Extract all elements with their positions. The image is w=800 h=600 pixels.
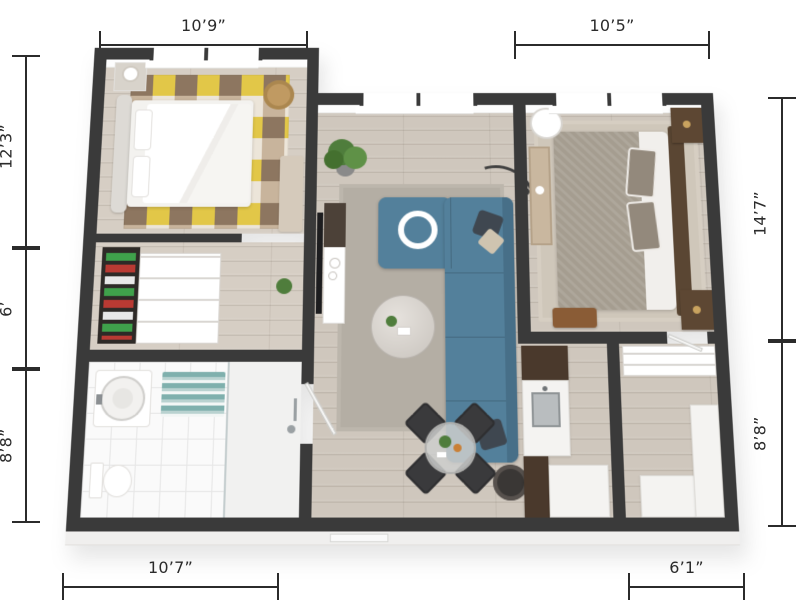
dimension-line	[25, 55, 27, 248]
dimension-line	[25, 369, 27, 523]
wall-closet-bathroom	[76, 350, 314, 362]
dimension-tick	[743, 573, 745, 600]
wall-bathroom	[299, 444, 313, 518]
pillow	[131, 156, 151, 197]
bench-2	[552, 308, 597, 328]
dimension-right-lower: 8’8”	[758, 341, 792, 527]
shower	[223, 362, 302, 518]
vase	[330, 259, 339, 268]
nightstand-knob	[683, 121, 691, 128]
dimension-tick	[12, 248, 40, 250]
dimension-line	[514, 44, 710, 46]
centerpiece-plant	[439, 435, 451, 447]
dimension-tick	[768, 97, 796, 99]
dimension-label-top-right: 10’5”	[514, 16, 710, 35]
dimension-tick	[628, 573, 630, 600]
bench-seat	[278, 156, 303, 232]
dimension-label-bottom-right: 6’1”	[628, 558, 745, 577]
entry-door-outline	[330, 534, 389, 543]
dimension-line	[25, 248, 27, 369]
window-sill	[549, 106, 663, 114]
dining-table	[427, 424, 475, 472]
wall-bedroom2-bottom	[518, 332, 668, 344]
dimension-line	[628, 586, 745, 588]
dimension-line	[62, 586, 279, 588]
dimension-tick	[12, 55, 40, 57]
napkin	[437, 452, 446, 457]
floor-plan-screenshot: 10’9” 10’5” 12’3” 6’ 8’8” 14’7” 8’8”	[0, 0, 800, 600]
shower-bar	[294, 398, 298, 421]
dimension-label-bottom-left: 10’7”	[62, 558, 279, 577]
floor-plan	[65, 48, 740, 545]
dimension-tick	[768, 341, 796, 343]
kitchen-faucet	[542, 386, 547, 391]
wall-bedroom1-closet	[96, 234, 242, 243]
serving-tray-ring	[398, 211, 438, 249]
vase	[329, 272, 336, 279]
dimension-line	[781, 97, 783, 341]
media-console-top	[324, 203, 346, 247]
nightstand-knob	[693, 306, 701, 314]
pillow	[133, 110, 152, 151]
wall-bedroom2-bottom	[707, 332, 728, 344]
dimension-tick	[277, 573, 279, 600]
fruit-bowl	[453, 444, 461, 452]
dimension-left-middle: 6’	[2, 248, 36, 369]
window-sill	[356, 106, 474, 114]
window-sill	[145, 60, 258, 68]
dimension-left-lower: 8’8”	[2, 369, 36, 523]
dimension-label-right-upper: 14’7”	[751, 202, 770, 236]
dresser-decor	[535, 186, 544, 195]
dimension-label-left-lower: 8’8”	[0, 429, 16, 463]
cushion-seam	[446, 400, 506, 401]
book	[398, 328, 410, 335]
foundation-base	[65, 531, 740, 545]
dimension-right-upper: 14’7”	[758, 97, 792, 341]
faucet	[96, 394, 103, 404]
cushion-seam	[445, 337, 504, 338]
dimension-bottom-right: 6’1”	[628, 552, 745, 600]
dimension-tick	[12, 521, 40, 523]
kitchen-sink	[531, 392, 561, 427]
dimension-tick	[768, 525, 796, 527]
wall	[66, 518, 739, 532]
table-plant	[386, 316, 397, 327]
kitchen-peninsula	[548, 465, 610, 518]
closet-shelf	[622, 346, 717, 376]
toilet-tank	[89, 463, 104, 499]
dimension-left-upper: 12’3”	[2, 55, 36, 248]
cushion-seam	[445, 272, 504, 273]
closet-shelf-unit	[136, 253, 222, 344]
dimension-tick	[12, 369, 40, 371]
plant-foliage	[343, 147, 367, 169]
window	[360, 93, 478, 106]
plant-foliage	[324, 150, 344, 169]
pillow	[625, 147, 657, 199]
kitchen-cabinet	[521, 346, 568, 380]
window	[149, 48, 262, 61]
duvet	[142, 104, 251, 203]
shoe-rack	[97, 247, 140, 344]
kitchen-cabinet-tall	[524, 456, 550, 517]
dimension-label-left-middle: 6’	[0, 292, 16, 326]
dimension-line	[781, 341, 783, 527]
dimension-tick	[62, 573, 64, 600]
dimension-label-right-lower: 8’8”	[751, 417, 770, 451]
dresser	[528, 147, 552, 246]
dimension-bottom-left: 10’7”	[62, 552, 279, 600]
dimension-line	[99, 44, 308, 46]
dimension-label-top-left: 10’9”	[99, 16, 308, 35]
bath-mat	[161, 372, 226, 417]
dimension-label-left-upper: 12’3”	[0, 135, 16, 169]
window	[552, 93, 666, 106]
